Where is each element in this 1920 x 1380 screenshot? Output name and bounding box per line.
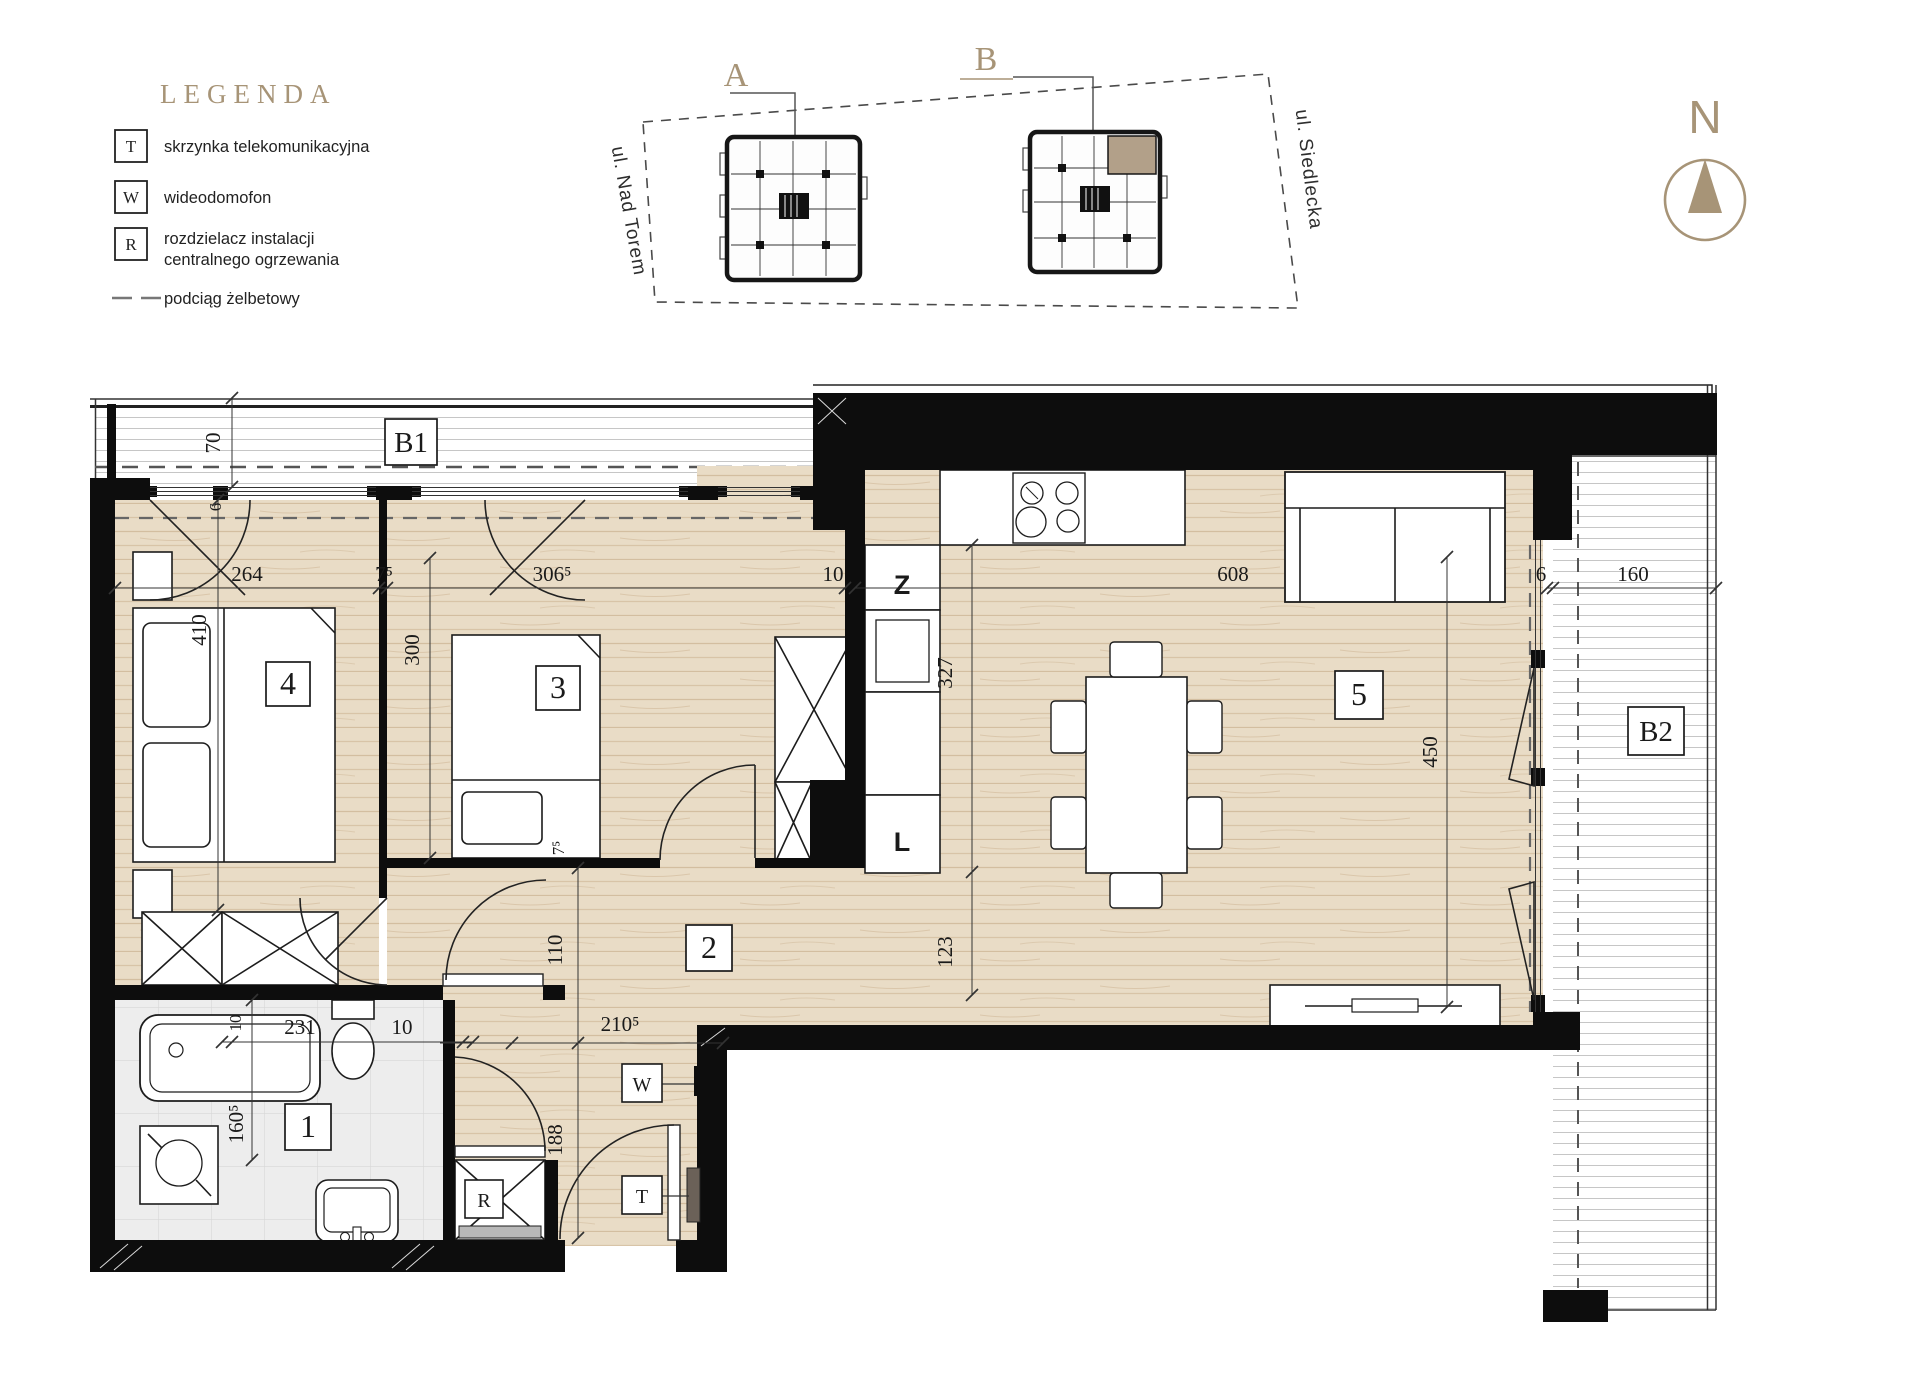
dim-b2-160: 160 [1617,562,1649,586]
dim-450: 450 [1418,736,1442,768]
compass-needle-icon [1688,159,1722,213]
toilet-tank [332,1000,374,1019]
wall-hall-right [697,1025,727,1252]
wall [90,478,115,1272]
floor-plan-page: LEGENDA T skrzynka telekomunikacyjna W w… [0,0,1920,1380]
nightstand [133,552,172,600]
balcony-b2-label: B2 [1639,716,1673,748]
pillow [462,792,542,844]
legend-label-r1: rozdzielacz instalacji [164,230,314,248]
legend-symbol-t: T [126,137,137,156]
nightstand [133,870,172,918]
wall [108,478,150,500]
wall-bath-right [443,1000,455,1160]
kitchen-z-label: Z [894,570,911,600]
wall-top-right [1543,393,1717,455]
telecom-device [687,1168,700,1222]
street-left-label: ul. Nad Torem [607,145,650,278]
sink-spout [353,1227,361,1241]
wall [545,1160,558,1240]
dim-608: 608 [1217,562,1249,586]
burner-icon [1056,482,1078,504]
toilet-bowl [332,1023,374,1079]
burner-icon [1057,510,1079,532]
chair [1187,701,1222,753]
kitchen-sink [876,620,929,682]
dim-b2-6: 6 [1536,562,1547,586]
chair [1110,873,1162,908]
legend: LEGENDA T skrzynka telekomunikacyjna W w… [112,79,370,308]
wall-corner [1533,1012,1580,1050]
site-plan: ul. Nad Torem ul. Siedlecka A B [607,41,1327,308]
chair [1051,701,1086,753]
sideboard-handle [1352,999,1418,1012]
legend-title: LEGENDA [160,79,336,109]
wall-pillar [1533,455,1572,540]
wall-stub [543,985,565,1000]
window [150,488,376,496]
highlighted-unit [1108,136,1156,174]
burner-icon [1016,507,1046,537]
dim-110: 110 [543,935,567,966]
dim-327: 327 [933,657,957,689]
apartment-plan: 70 6 264 7⁵ 306⁵ 10 608 6 160 410 300 7⁵… [90,385,1722,1322]
dim-bath-10b: 10 [392,1015,413,1039]
wall-bath-top [115,985,443,1000]
washing-machine-drum [156,1140,202,1186]
wall [755,858,845,868]
bathtub-drain [169,1043,183,1057]
wall-top-main [813,393,1543,470]
chair [1110,642,1162,677]
dim-bath-231: 231 [284,1015,316,1039]
dim-b1-depth: 70 [201,433,225,454]
wall-b2-stub [1543,1290,1608,1322]
chair [1051,797,1086,849]
heating-label: R [477,1190,491,1212]
dim-bath-10a: 10 [226,1015,245,1032]
videophone-label: W [633,1074,652,1096]
videophone-device [694,1066,703,1096]
dim-10: 10 [823,562,844,586]
building-b-leader [1013,77,1093,130]
bathroom-sink-inner [324,1188,390,1232]
dim-r3-75: 7⁵ [549,841,568,856]
wall-r3-kitchen [845,500,865,868]
street-right-label: ul. Siedlecka [1291,108,1327,230]
compass: N [1665,91,1745,240]
legend-symbol-w: W [123,188,140,207]
wall-living-bottom [697,1025,1543,1050]
dim-410: 410 [187,614,211,646]
dim-300: 300 [400,634,424,666]
wall [688,486,718,500]
room-3-label: 3 [550,669,566,705]
building-a-miniplan [720,137,867,280]
kitchen-cabinet [865,692,940,795]
fridge-l-label: L [894,827,911,857]
dim-window: 6 [206,503,225,512]
dim-3065: 306⁵ [533,562,572,586]
dim-264: 264 [231,562,263,586]
building-a-label: A [724,57,749,94]
wall-r4-r3 [379,500,387,898]
room-4-label: 4 [280,665,296,701]
window [412,488,688,496]
wall [443,1160,455,1240]
room-5-label: 5 [1351,676,1367,712]
legend-label-r2: centralnego ogrzewania [164,251,340,269]
legend-label-w: wideodomofon [163,189,271,207]
legend-label-dashed: podciąg żelbetowy [164,290,301,308]
dim-2105: 210⁵ [601,1012,640,1036]
dim-123: 123 [933,936,957,968]
wall [376,486,412,500]
pillow [143,743,210,847]
dim-188: 188 [543,1124,567,1156]
dim-bath-1605: 160⁵ [224,1105,248,1144]
building-b-label: B [975,41,998,78]
room-2-label: 2 [701,929,717,965]
balcony-b1-label: B1 [394,427,428,459]
wall-bottom-left [90,1240,565,1272]
telecom-label: T [636,1186,648,1208]
room-1-label: 1 [300,1108,316,1144]
wall-bottom-right [676,1240,727,1272]
dining-table [1086,677,1187,873]
closet-base [459,1226,541,1238]
north-label: N [1688,91,1721,143]
legend-symbol-r: R [125,235,137,254]
wall [107,404,116,487]
building-b-miniplan [1023,132,1167,272]
dim-75: 7⁵ [375,562,393,586]
legend-label-t: skrzynka telekomunikacyjna [164,138,370,156]
chair [1187,797,1222,849]
